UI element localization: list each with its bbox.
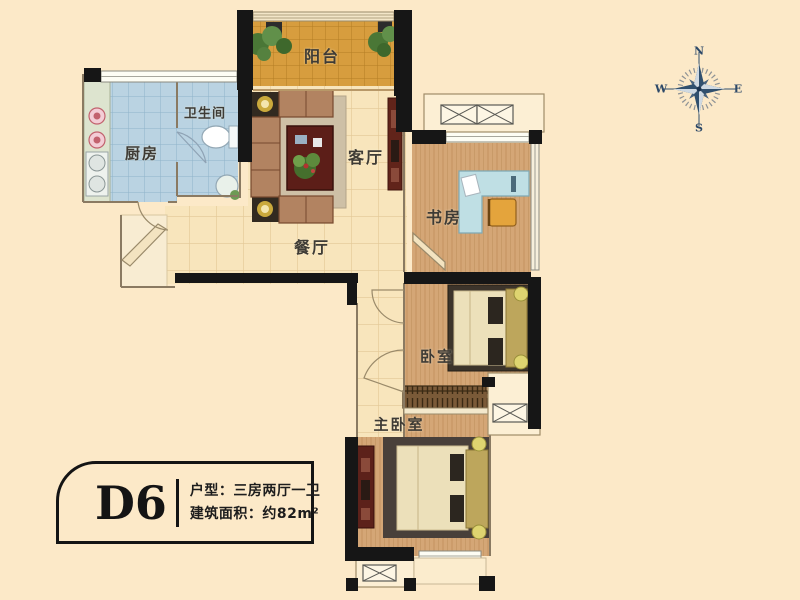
wall xyxy=(404,272,531,284)
wall xyxy=(396,96,412,132)
wall xyxy=(528,277,541,429)
wall xyxy=(175,273,358,283)
unit-info-lines: 户型：三房两厅一卫 建筑面积：约82m² xyxy=(190,483,321,523)
dining-room-label: 餐厅 xyxy=(294,234,330,258)
wall xyxy=(404,578,416,591)
wall xyxy=(347,283,357,305)
wall xyxy=(394,10,412,96)
balcony-railing xyxy=(253,12,394,21)
pillow xyxy=(450,495,464,522)
compass-icon xyxy=(662,52,736,126)
bedside-lamp-icon xyxy=(514,355,528,369)
wall xyxy=(84,68,101,82)
pillow xyxy=(450,454,464,481)
wall xyxy=(529,130,542,144)
unit-area-line: 建筑面积：约82m² xyxy=(190,506,321,523)
wall xyxy=(412,130,446,144)
unit-code: D6 xyxy=(95,480,167,526)
wall xyxy=(346,578,358,591)
wall xyxy=(482,377,495,387)
coffee-table xyxy=(287,126,333,190)
wall xyxy=(345,437,358,549)
wall xyxy=(238,68,252,162)
tv-cabinet xyxy=(357,446,374,528)
study-label: 书房 xyxy=(426,204,462,228)
balcony-label: 阳台 xyxy=(304,43,340,67)
wall xyxy=(479,576,495,591)
compass-west-label: W xyxy=(655,83,667,96)
wall xyxy=(345,547,414,561)
desk-chair xyxy=(489,199,516,226)
monitor-icon xyxy=(511,176,516,192)
toilet-icon xyxy=(202,126,238,148)
bathroom-label: 卫生间 xyxy=(184,103,226,122)
pillow xyxy=(488,297,503,324)
bedroom-label: 卧室 xyxy=(420,346,454,367)
bedside-lamp-icon xyxy=(472,525,486,539)
compass-south-label: S xyxy=(695,122,703,135)
wardrobe xyxy=(403,391,490,408)
unit-info-box: D6 户型：三房两厅一卫 建筑面积：约82m² xyxy=(56,461,314,544)
master-bed xyxy=(383,437,491,539)
floor-plan-page: 阳台 厨房 卫生间 客厅 餐厅 书房 卧室 主卧室 N E S W D6 户型：… xyxy=(0,0,800,600)
living-room-label: 客厅 xyxy=(348,144,384,168)
pillow xyxy=(488,338,503,365)
compass-north-label: N xyxy=(694,45,704,58)
kitchen-label: 厨房 xyxy=(125,143,159,164)
info-divider xyxy=(176,479,179,527)
bedside-lamp-icon xyxy=(472,437,486,451)
kitchen-counter xyxy=(84,76,110,202)
unit-type-line: 户型：三房两厅一卫 xyxy=(190,483,321,500)
bed xyxy=(448,285,530,371)
bedside-lamp-icon xyxy=(514,287,528,301)
compass-east-label: E xyxy=(734,83,742,96)
headboard xyxy=(466,450,488,528)
master-bedroom-label: 主卧室 xyxy=(373,414,424,435)
